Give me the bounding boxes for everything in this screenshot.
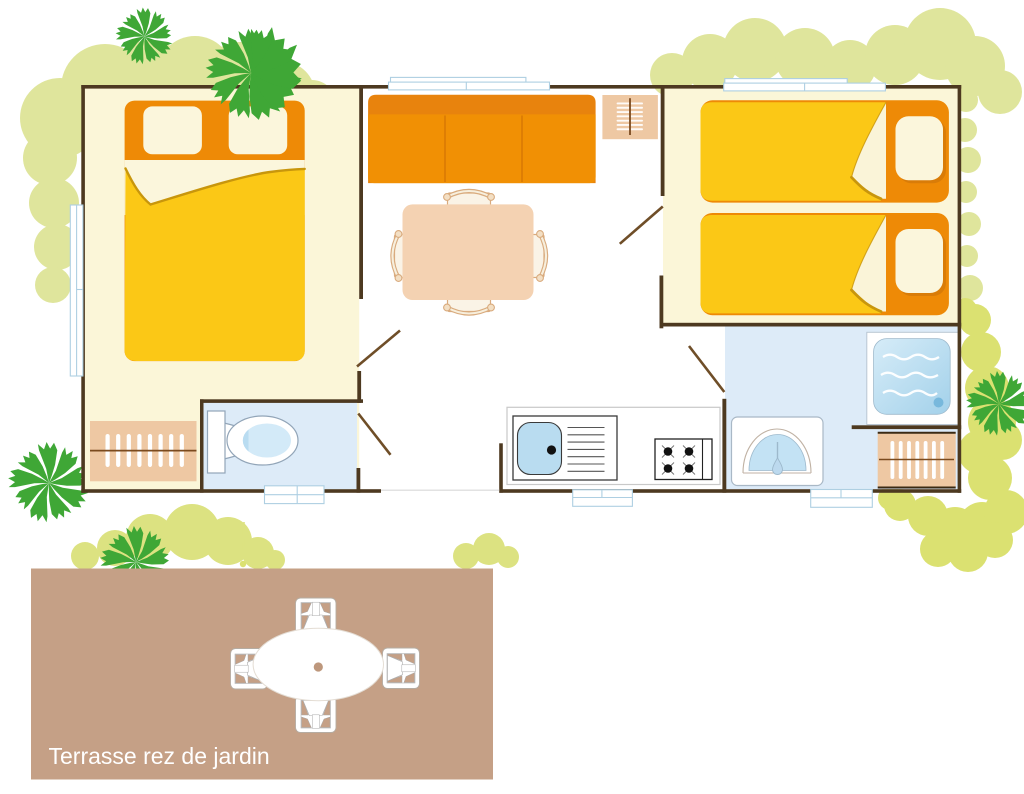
svg-text:Terrasse rez de jardin: Terrasse rez de jardin [49,743,270,769]
